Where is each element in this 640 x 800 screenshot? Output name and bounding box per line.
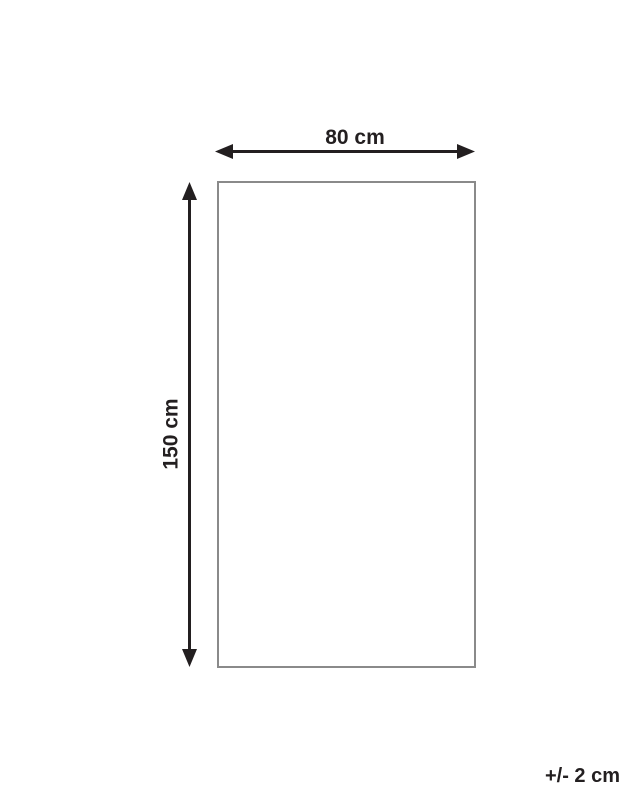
height-arrow-icon — [182, 182, 197, 667]
product-outline-rectangle — [217, 181, 476, 668]
tolerance-label: +/- 2 cm — [545, 766, 620, 786]
dimension-diagram: 80 cm 150 cm +/- 2 cm — [0, 0, 640, 800]
width-dimension-label: 80 cm — [325, 127, 385, 148]
height-dimension-label: 150 cm — [161, 398, 182, 469]
